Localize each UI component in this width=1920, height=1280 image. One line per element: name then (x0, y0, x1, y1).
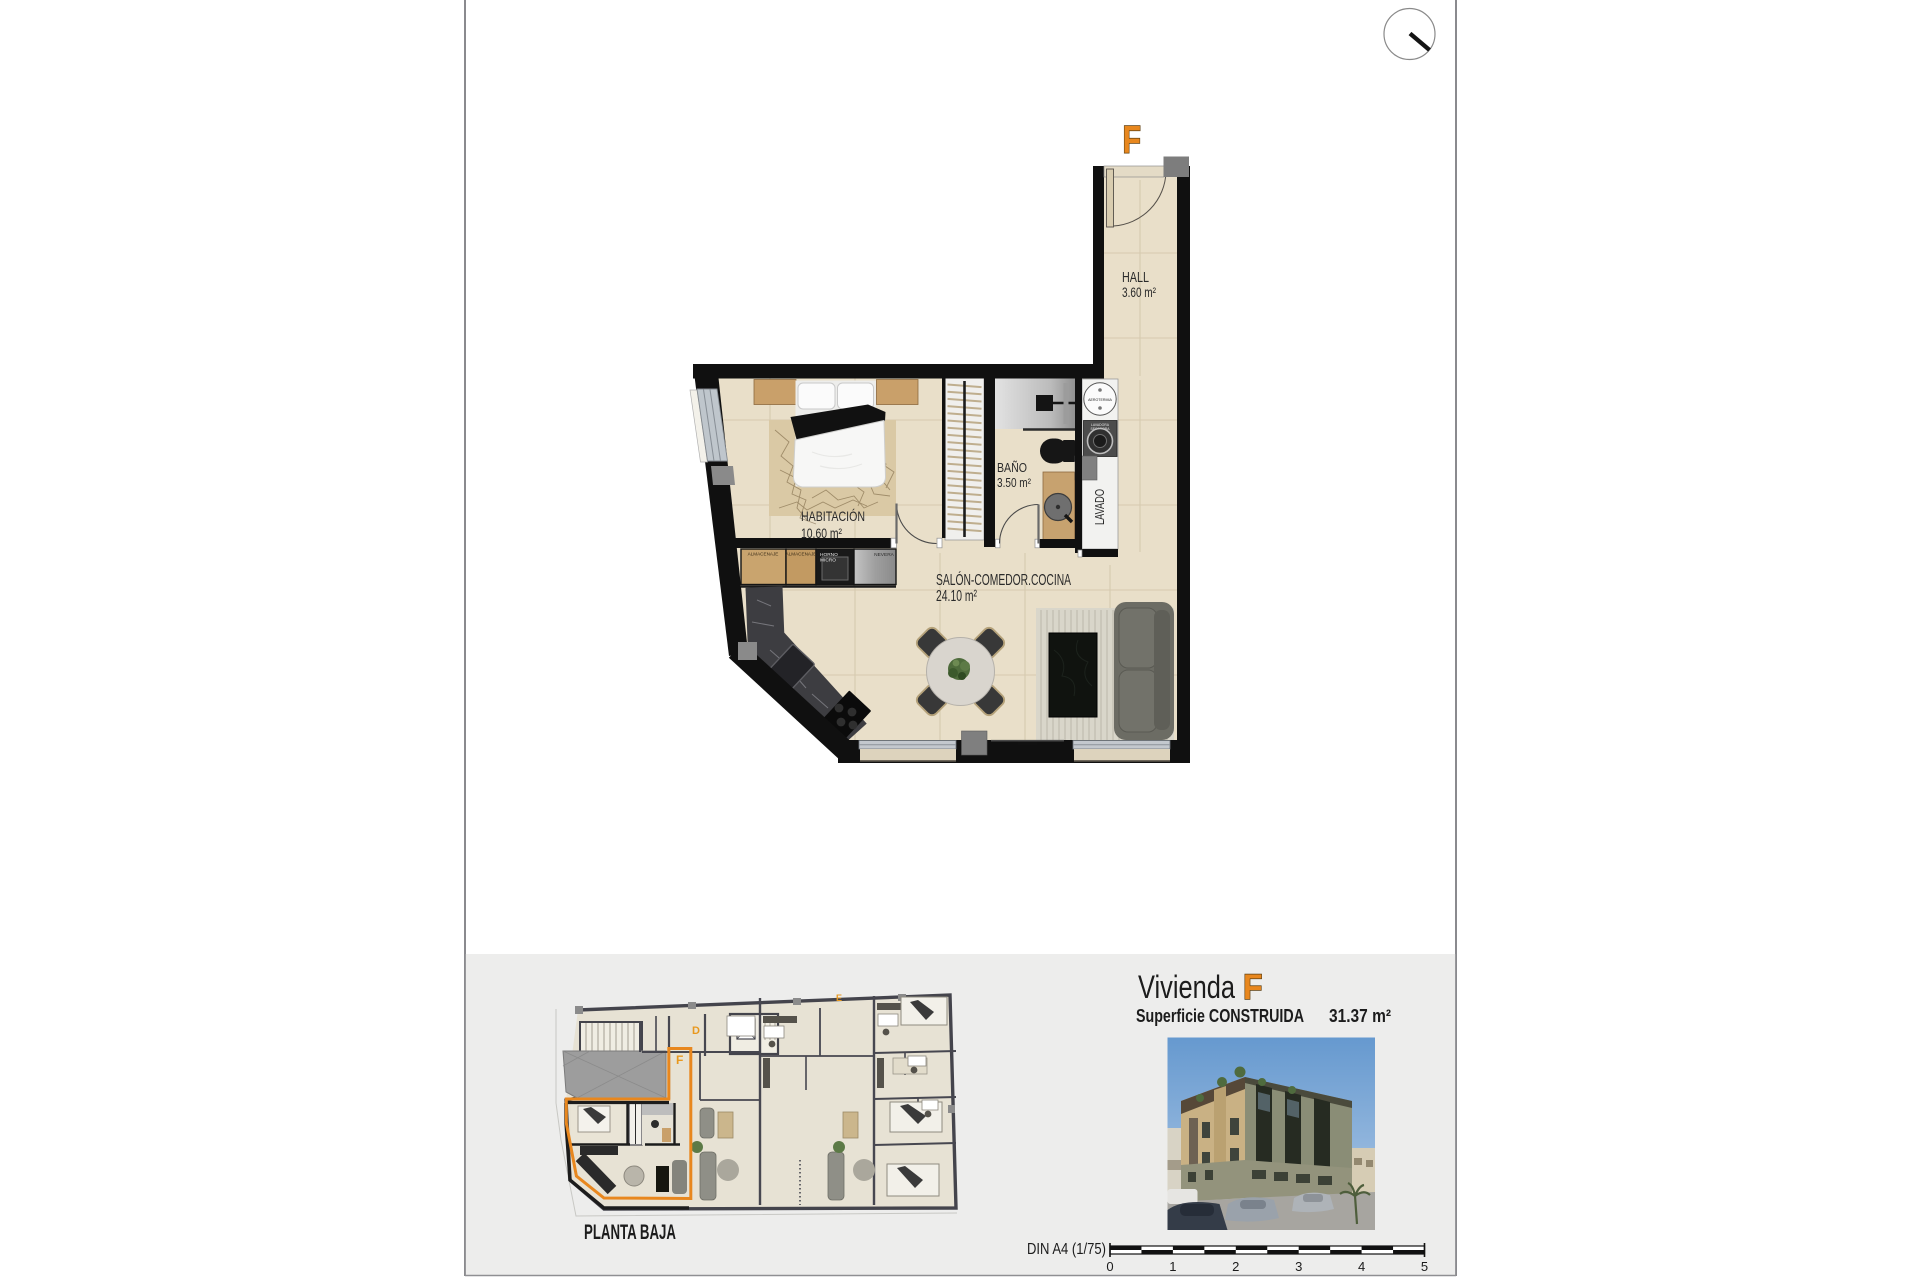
svg-text:MICRO: MICRO (820, 558, 836, 564)
svg-text:HABITACIÓN: HABITACIÓN (801, 508, 865, 524)
svg-text:HORNO: HORNO (820, 552, 838, 558)
svg-text:F: F (1243, 968, 1263, 1007)
svg-text:F: F (676, 1053, 683, 1067)
svg-text:DIN A4 (1/75): DIN A4 (1/75) (1027, 1241, 1106, 1258)
svg-text:E: E (836, 993, 842, 1003)
svg-text:0: 0 (1106, 1259, 1113, 1274)
svg-text:ALMACENAJE: ALMACENAJE (748, 552, 779, 557)
svg-text:LAVADO: LAVADO (1093, 489, 1107, 525)
svg-text:24.10 m²: 24.10 m² (936, 588, 977, 605)
svg-text:AEROTERMIA: AEROTERMIA (1088, 398, 1112, 402)
svg-text:2: 2 (1232, 1259, 1239, 1274)
svg-text:3: 3 (1295, 1259, 1302, 1274)
svg-text:F: F (1123, 119, 1142, 162)
svg-text:BAÑO: BAÑO (997, 460, 1027, 475)
svg-text:ALMACENAJE: ALMACENAJE (786, 552, 817, 557)
svg-text:4: 4 (1358, 1259, 1365, 1274)
svg-text:NEVERA: NEVERA (874, 552, 895, 558)
svg-text:Superficie CONSTRUIDA: Superficie CONSTRUIDA (1136, 1006, 1304, 1026)
svg-text:5: 5 (1421, 1259, 1428, 1274)
svg-text:Vivienda: Vivienda (1138, 969, 1235, 1005)
svg-text:SALÓN-COMEDOR.COCINA: SALÓN-COMEDOR.COCINA (936, 570, 1071, 589)
svg-text:31.37 m²: 31.37 m² (1329, 1006, 1391, 1026)
svg-text:3.50 m²: 3.50 m² (997, 475, 1032, 490)
svg-text:PLANTA BAJA: PLANTA BAJA (584, 1221, 676, 1244)
svg-text:1: 1 (1169, 1259, 1176, 1274)
svg-text:3.60 m²: 3.60 m² (1122, 284, 1156, 300)
svg-text:D: D (692, 1025, 700, 1037)
